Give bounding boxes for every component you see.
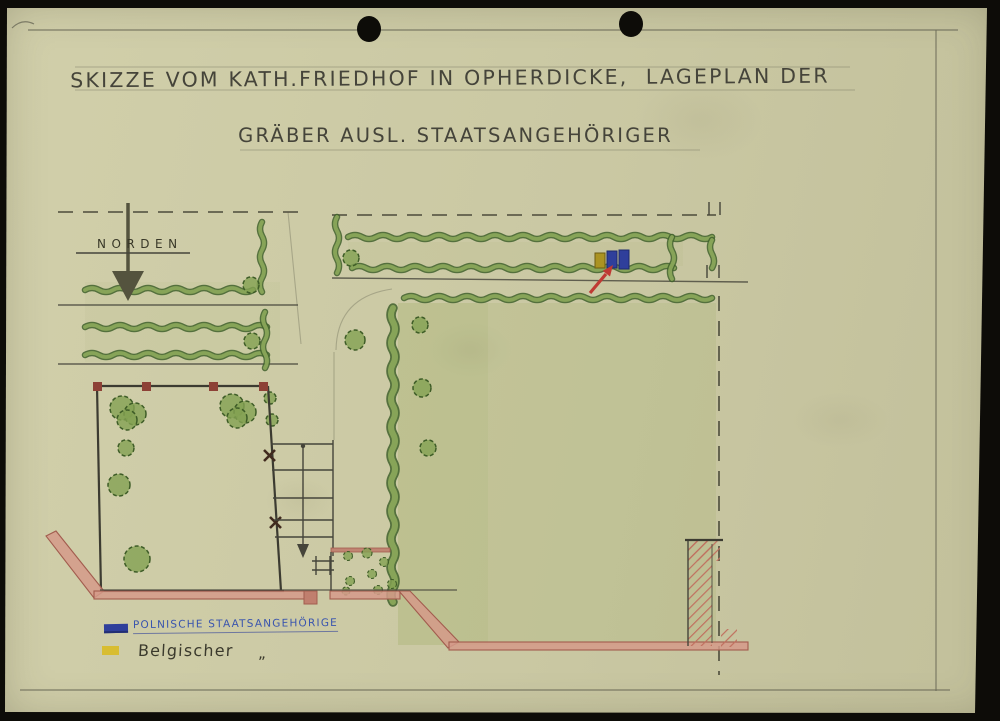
grave-marker-belgian [595, 253, 605, 268]
ditto-mark: „ [258, 644, 266, 662]
punch-hole [619, 11, 643, 37]
grave-marker-polish [607, 251, 617, 268]
tree [110, 396, 146, 430]
stairs [271, 440, 333, 556]
title-line-2: GRÄBER AUSL. STAATSANGEHÖRIGER [233, 124, 678, 147]
planting-bed [331, 548, 397, 595]
legend-swatch-polish [104, 624, 128, 633]
legend-label-polish: POLNISCHE STAATSANGEHÖRIGE [133, 617, 338, 634]
stairs-direction-arrow [297, 444, 309, 558]
scanned-sheet: SKIZZE VOM KATH.FRIEDHOF IN OPHERDICKE, … [0, 0, 1000, 721]
title-line-1: SKIZZE VOM KATH.FRIEDHOF IN OPHERDICKE, … [55, 64, 845, 93]
legend-label-belgian: Belgischer [138, 641, 235, 660]
tree [220, 394, 256, 428]
punch-hole [357, 16, 381, 42]
grave-marker-polish [619, 250, 629, 269]
site-plan-drawing [0, 0, 1000, 721]
building-hatched [685, 540, 737, 647]
legend-swatch-belgian [102, 646, 119, 655]
north-label: NORDEN [97, 237, 183, 251]
